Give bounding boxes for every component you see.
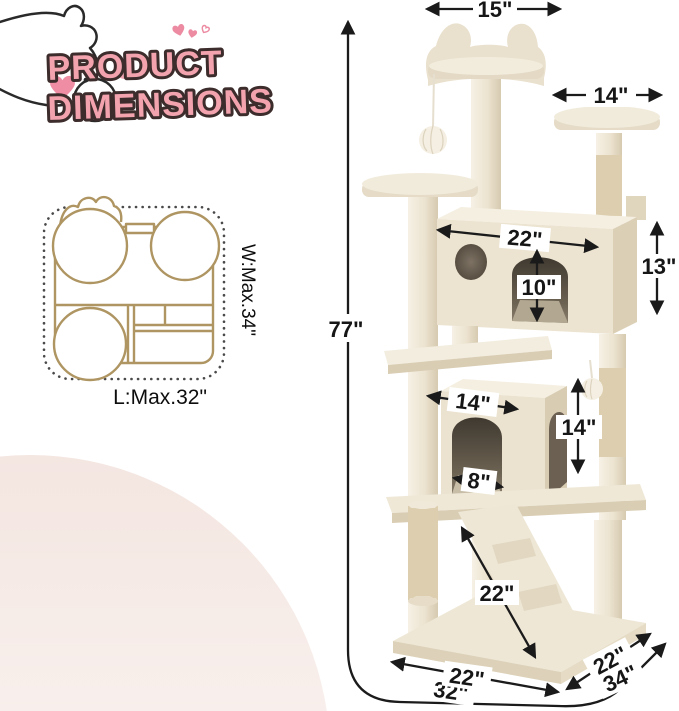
- ball-string: [433, 74, 434, 127]
- page-title: PRODUCT DIMENSIONS: [47, 44, 274, 128]
- cube-width-value: 14": [454, 388, 492, 417]
- perch-circle-left: [53, 209, 127, 283]
- cube-door-width-value: 8": [466, 468, 492, 496]
- title-line-2: DIMENSIONS: [47, 82, 274, 128]
- top-view-diagram: W:Max.34" L:Max.32": [44, 197, 258, 409]
- infographic-canvas: PRODUCT DIMENSIONS W:Max.34" L:Max.32": [0, 0, 679, 711]
- base-front-width-value: 22": [448, 663, 486, 693]
- title-line-1: PRODUCT: [47, 44, 223, 88]
- left-perch-top: [362, 173, 478, 195]
- condo-height-value: 13": [642, 254, 677, 279]
- ladder-length-value: 22": [480, 581, 515, 606]
- condo-floor: [512, 300, 568, 323]
- total-height-value: 77": [329, 317, 364, 342]
- main-top-post: [471, 77, 501, 219]
- perch-circle-right: [151, 212, 219, 280]
- right-perch-width-value: 14": [594, 83, 629, 108]
- perch-circle-bottom: [54, 308, 126, 380]
- dim-top-perch-width: 15": [427, 0, 560, 22]
- condo-width-value: 22": [506, 225, 543, 253]
- product-dimensions-infographic: PRODUCT DIMENSIONS W:Max.34" L:Max.32": [0, 0, 679, 711]
- dim-total-height: 77": [322, 314, 370, 342]
- right-perch-top: [554, 106, 660, 128]
- condo-side: [613, 217, 637, 334]
- ball-string-lower: [590, 360, 592, 378]
- top-perch-width-value: 15": [478, 0, 513, 22]
- condo-door-height-value: 10": [522, 275, 557, 300]
- width-max-label: W:Max.34": [237, 244, 258, 336]
- right-mid-post-sisal: [599, 368, 626, 457]
- length-max-label: L:Max.32": [113, 386, 207, 409]
- dim-right-perch-width: 14": [554, 83, 661, 108]
- floating-hearts-icon: [172, 23, 210, 38]
- dim-condo-height: 13": [637, 223, 679, 313]
- top-perch-surface: [429, 57, 543, 75]
- bridge-board: [126, 224, 154, 233]
- pink-gradient-blob: [0, 455, 330, 711]
- rear-post: [626, 196, 646, 220]
- cube-height-value: 14": [562, 415, 597, 440]
- right-low-post: [594, 520, 622, 622]
- left-post-sisal: [408, 505, 438, 600]
- condo-round-hole: [455, 244, 487, 280]
- right-top-post-sisal: [596, 155, 622, 218]
